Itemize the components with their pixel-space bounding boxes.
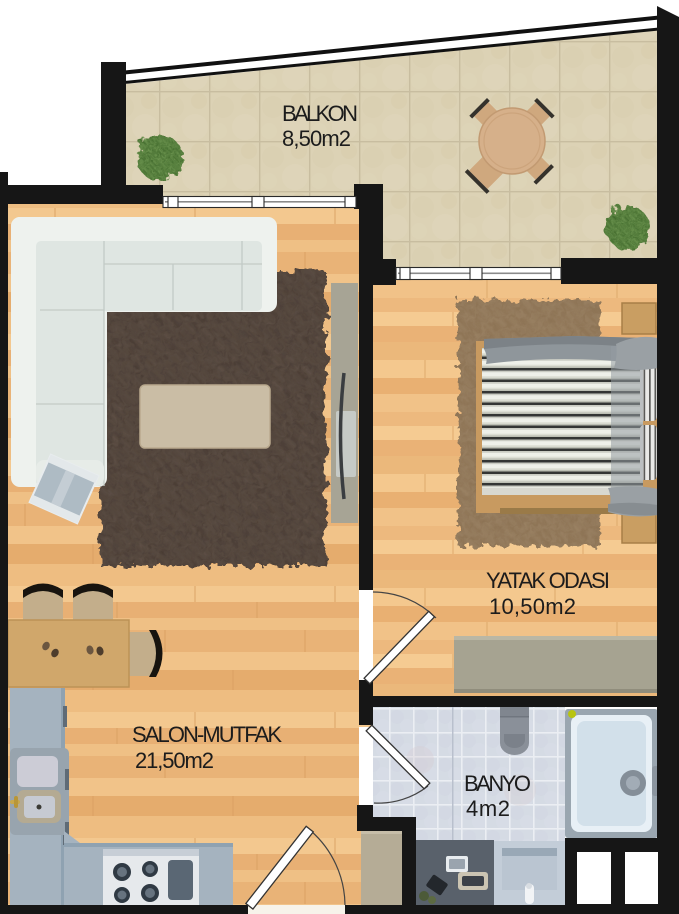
svg-text:4m2: 4m2 [466,796,510,821]
svg-text:SALON-MUTFAK: SALON-MUTFAK [132,722,282,747]
svg-text:BALKON: BALKON [282,101,358,126]
svg-text:8,50m2: 8,50m2 [282,126,351,151]
svg-text:YATAK ODASI: YATAK ODASI [486,568,610,593]
svg-text:21,50m2: 21,50m2 [135,748,214,773]
svg-text:BANYO: BANYO [464,771,531,796]
svg-text:10,50m2: 10,50m2 [489,594,576,619]
